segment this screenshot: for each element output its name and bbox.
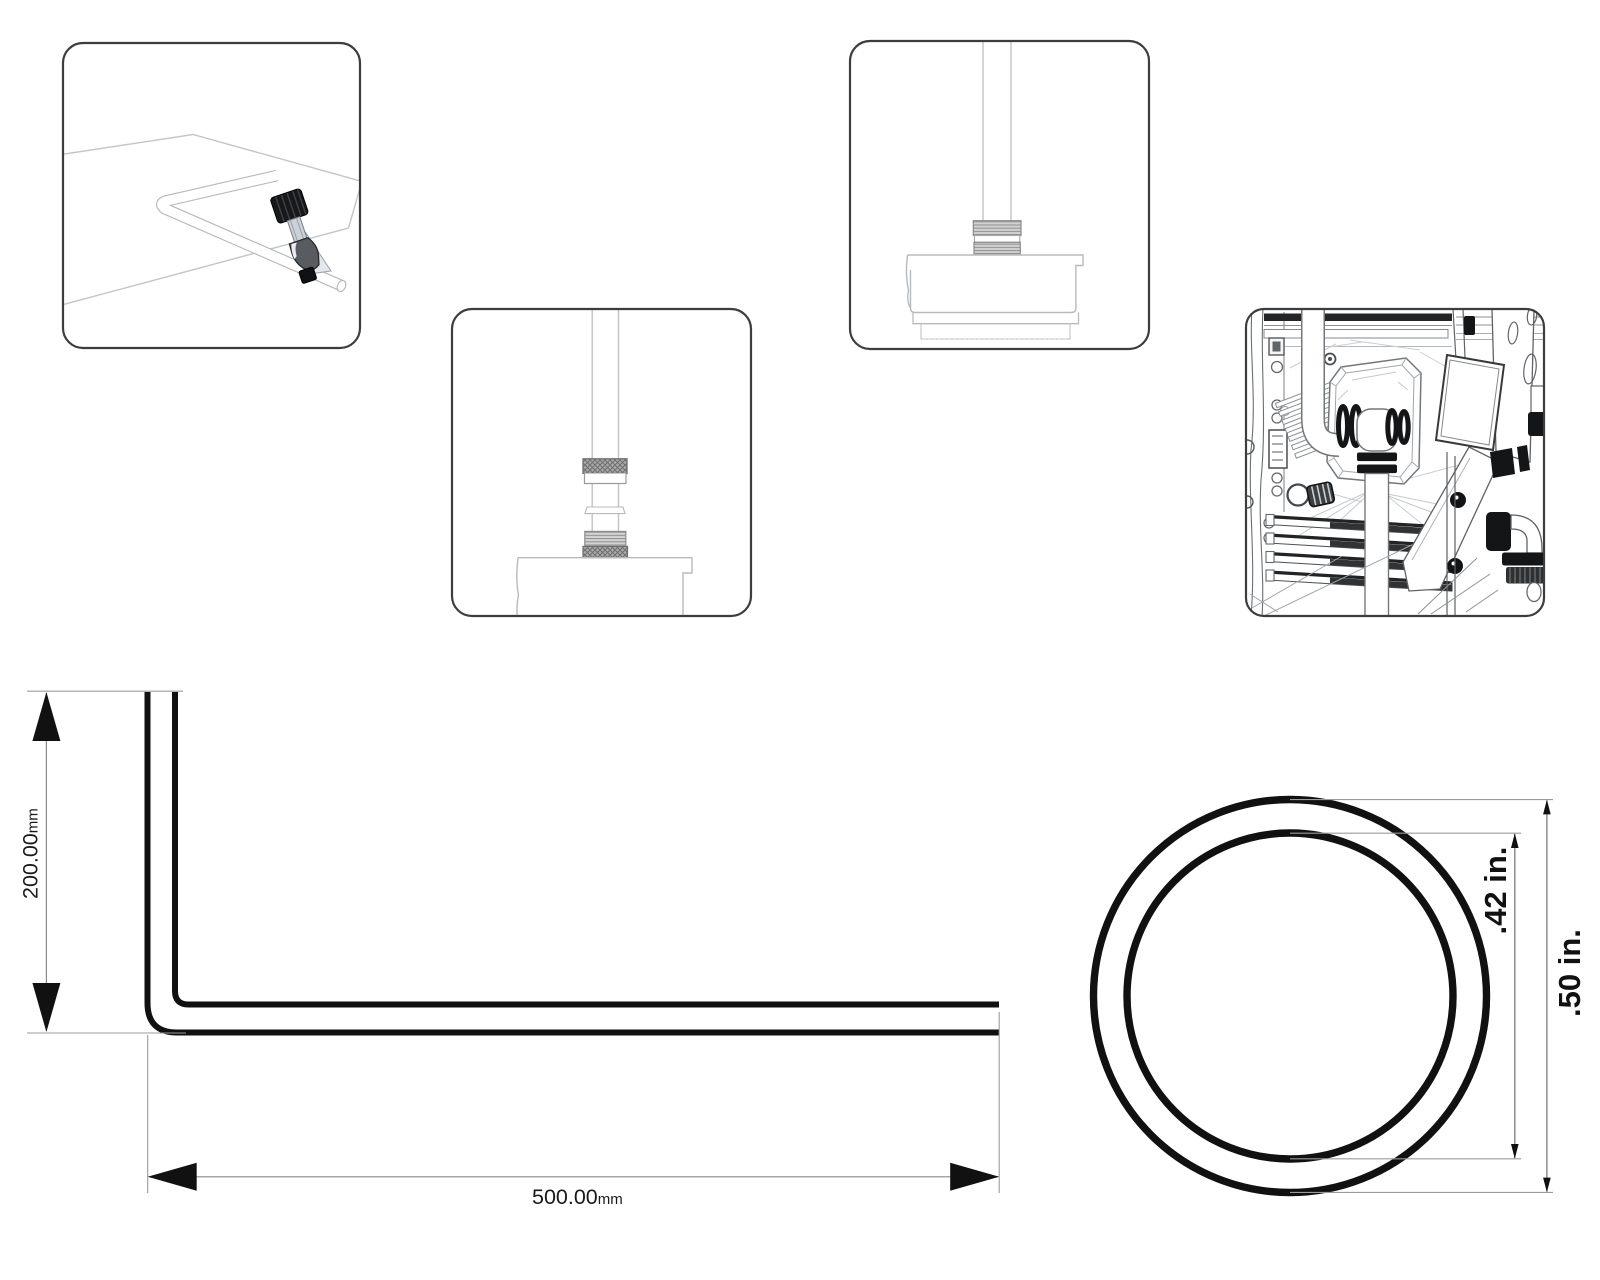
svg-text:.42 in.: .42 in. bbox=[1478, 847, 1513, 935]
svg-text:.50 in.: .50 in. bbox=[1552, 929, 1587, 1017]
